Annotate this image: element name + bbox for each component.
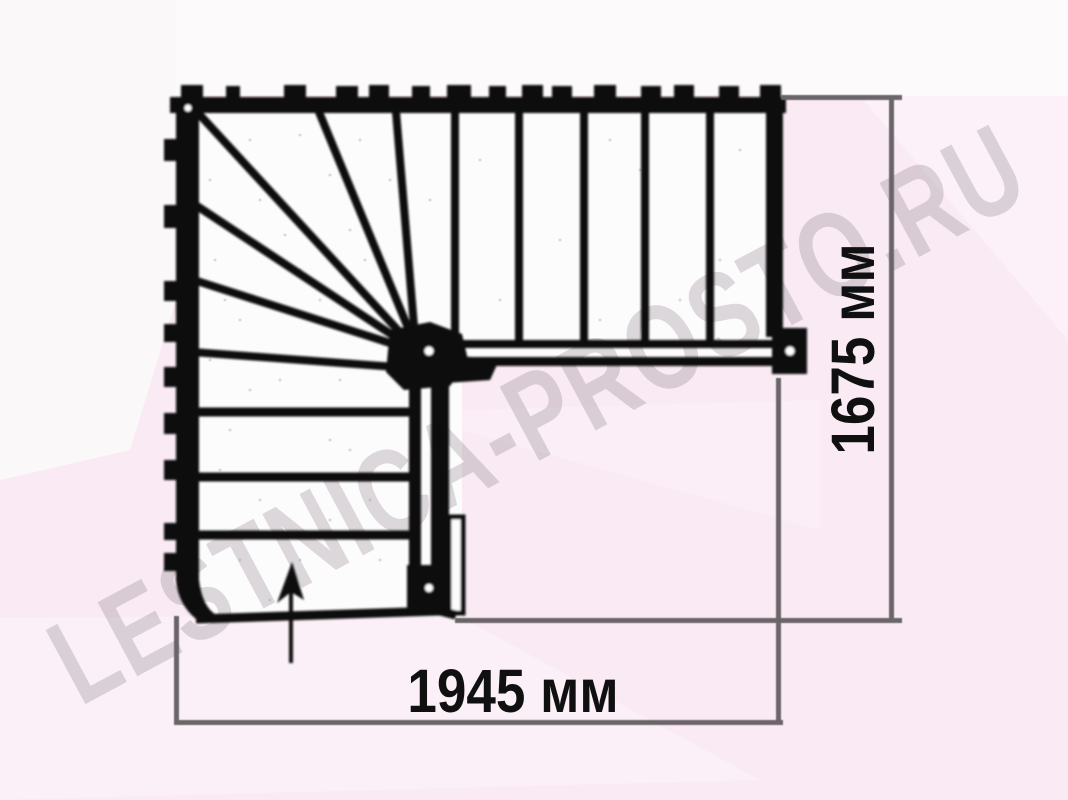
- svg-text:1675 мм: 1675 мм: [820, 243, 888, 454]
- svg-text:1945 мм: 1945 мм: [407, 658, 618, 726]
